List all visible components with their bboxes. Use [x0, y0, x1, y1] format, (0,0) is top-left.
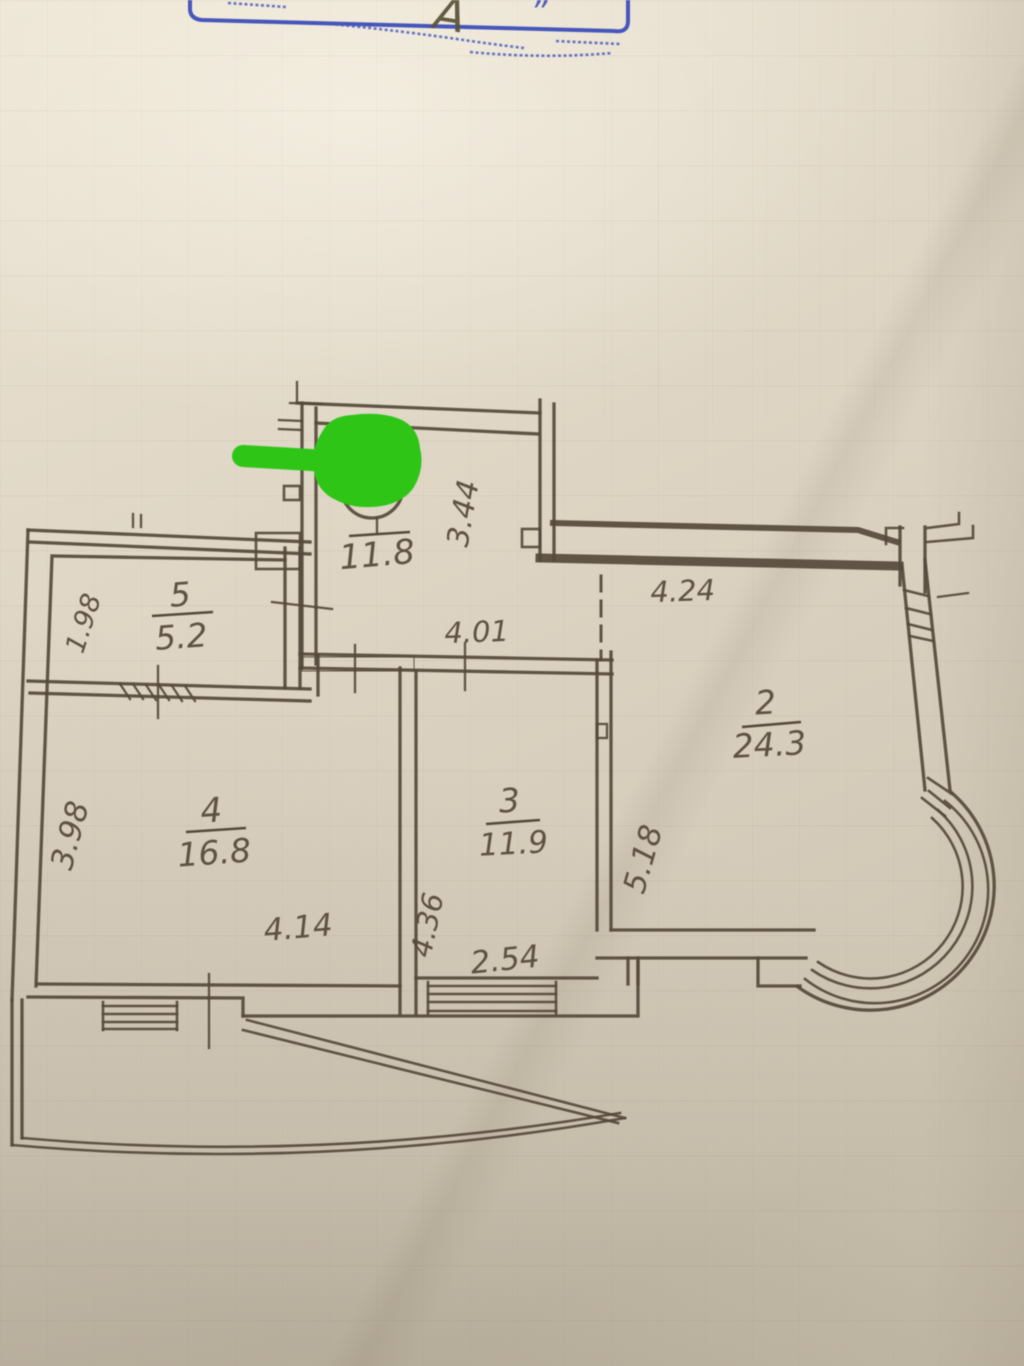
wall-break-prong — [927, 513, 959, 528]
dim-room3-height-label: 4.36 — [404, 890, 451, 960]
stamp-quote-mark: ” — [530, 0, 548, 33]
exterior-left-wall-inner — [36, 556, 52, 986]
room5-inner-top — [55, 556, 285, 560]
room3-walls — [243, 652, 638, 1016]
balcony-left-edge — [12, 1000, 22, 1145]
room5-area-label: 5.2 — [154, 615, 209, 658]
bay-arc — [818, 818, 963, 979]
wall-bump — [522, 529, 540, 547]
wall-segment — [925, 560, 950, 790]
window-lines — [428, 986, 556, 1011]
exterior-top-outer — [553, 523, 897, 542]
hinge-ticks — [279, 420, 302, 430]
wall-step — [758, 958, 800, 986]
room34-shared-wall — [400, 668, 416, 1014]
room2-area-label: 24.3 — [732, 723, 807, 766]
stamp-dotted-line — [228, 3, 286, 7]
room2-right-wall — [902, 560, 968, 816]
room2-top-walls — [540, 513, 973, 592]
dim-room2-width-label: 4.24 — [650, 573, 716, 609]
exterior-top-inner — [540, 558, 899, 566]
bay-window — [798, 793, 994, 1010]
wall-tick — [133, 514, 141, 527]
dim-room3-width-label: 2.54 — [469, 939, 541, 982]
wall-segment — [902, 565, 925, 790]
room4-area-label: 16.8 — [176, 831, 252, 875]
window-lines — [103, 1006, 177, 1029]
wall-bump — [284, 486, 300, 500]
kitchen-left-wall — [302, 403, 316, 668]
floorplan-drawing: А ” — [0, 0, 1024, 1366]
room5-number-label: 5 — [168, 574, 192, 614]
floorplan-photo: А ” — [0, 0, 1024, 1366]
dim-tick — [938, 593, 968, 597]
wall-segment — [30, 542, 310, 554]
dim-corridor-width-label: 4.01 — [444, 614, 510, 650]
balcony-bottom-edge — [12, 1118, 625, 1154]
stamp-handwritten-letter: А — [427, 0, 469, 44]
kitchen-right-wall — [540, 400, 554, 560]
green-arrow-annotation — [243, 414, 422, 507]
room3-number-label: 3 — [498, 780, 521, 820]
dim-room2-height-label: 5.18 — [617, 821, 671, 897]
stamp-fragment: А ” — [190, 0, 628, 56]
room2-bottom-walls — [597, 930, 814, 986]
room4-bottom-inner — [38, 984, 400, 986]
room3-fraction-line — [486, 820, 540, 824]
wall-stub — [290, 382, 322, 404]
room4-walls — [28, 974, 400, 1048]
room3-right-wall — [597, 652, 611, 930]
kitchen-walls — [272, 382, 554, 668]
room3-area-label: 11.9 — [478, 824, 549, 864]
exterior-left-wall — [12, 530, 28, 1000]
balcony-top-edge — [243, 1030, 618, 1123]
stamp-microtext-line2 — [470, 52, 612, 56]
balcony-bottom-edge — [22, 1113, 620, 1147]
room2-number-label: 2 — [754, 682, 777, 722]
balcony-top-edge — [247, 1020, 625, 1118]
dim-room4-width-label: 4.14 — [262, 907, 334, 949]
walls — [12, 382, 994, 1154]
dim-room5-height-label: 1.98 — [60, 590, 108, 657]
green-arrow-blob — [313, 414, 422, 507]
dim-room4-height-label: 3.98 — [44, 797, 97, 873]
room4-number-label: 4 — [199, 790, 223, 831]
labels: 11.8 3.44 4.01 4.24 5 5.2 1.98 4 16.8 3.… — [44, 477, 807, 981]
dim-kitchen-height-label: 3.44 — [441, 477, 487, 549]
stamp-microtext-line3 — [556, 41, 620, 44]
kitchen-area-label: 11.8 — [338, 532, 417, 578]
exterior-bottom-line — [243, 962, 638, 1016]
